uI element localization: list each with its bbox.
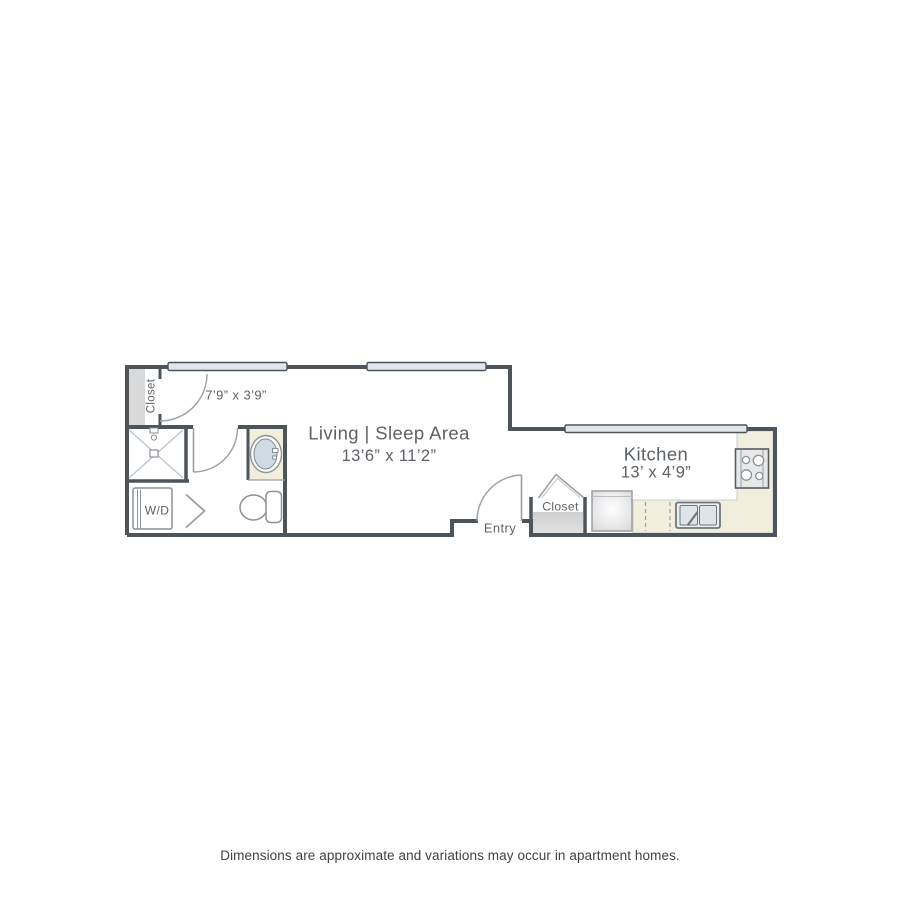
- living-area-name-label: Living | Sleep Area: [308, 423, 470, 444]
- living-area-dimensions-label: 13’6” x 11’2”: [342, 447, 437, 465]
- shower-drain: [150, 450, 158, 457]
- stove-body: [736, 449, 769, 488]
- entry-closet-bifold-door-inner: [542, 479, 581, 499]
- toilet-tank: [266, 492, 282, 523]
- toilet-bowl: [240, 495, 267, 520]
- kitchen-sink: [676, 503, 720, 529]
- window-kitchen: [565, 425, 747, 433]
- bathroom-door-swing: [194, 428, 238, 472]
- burner-small-1: [742, 456, 749, 463]
- sink-basin: [254, 439, 277, 469]
- burner-large-1: [753, 455, 763, 465]
- entry-closet-shelf: [533, 512, 583, 533]
- washer-dryer-label: W/D: [145, 504, 170, 518]
- stove: [736, 449, 769, 488]
- sink-handle: [273, 456, 277, 459]
- shower-head: [151, 435, 156, 440]
- floor-plan: W/D Closet 7’9” x 3’9” Living | Sle: [0, 0, 900, 900]
- left-closet-door-swing: [160, 374, 207, 421]
- disclaimer-text: Dimensions are approximate and variation…: [0, 848, 900, 863]
- exterior-wall-entry-notch: [127, 521, 478, 535]
- toilet: [240, 492, 282, 523]
- shower-valve: [150, 428, 158, 433]
- left-closet-label: Closet: [146, 378, 158, 413]
- kitchen-dimensions-label: 13’ x 4’9”: [621, 464, 691, 482]
- burner-small-2: [756, 472, 763, 479]
- floor-plan-canvas: W/D Closet 7’9” x 3’9” Living | Sle: [0, 0, 900, 900]
- window-living-left: [168, 363, 287, 371]
- window-living-right: [367, 363, 486, 371]
- left-closet-shelf: [129, 369, 145, 425]
- sink-faucet: [273, 449, 279, 453]
- refrigerator: [592, 491, 632, 531]
- entry-label: Entry: [484, 521, 516, 536]
- shower: [129, 428, 183, 478]
- kitchen-sink-basin-right: [700, 506, 717, 526]
- bathroom-dimensions-label: 7’9” x 3’9”: [205, 388, 266, 403]
- bathroom-bifold-door: [186, 495, 205, 528]
- kitchen-name-label: Kitchen: [624, 444, 689, 465]
- burner-large-2: [741, 470, 751, 480]
- entry-closet-label: Closet: [542, 500, 579, 514]
- entry-door-swing: [477, 475, 522, 521]
- washer-dryer: W/D: [133, 488, 172, 529]
